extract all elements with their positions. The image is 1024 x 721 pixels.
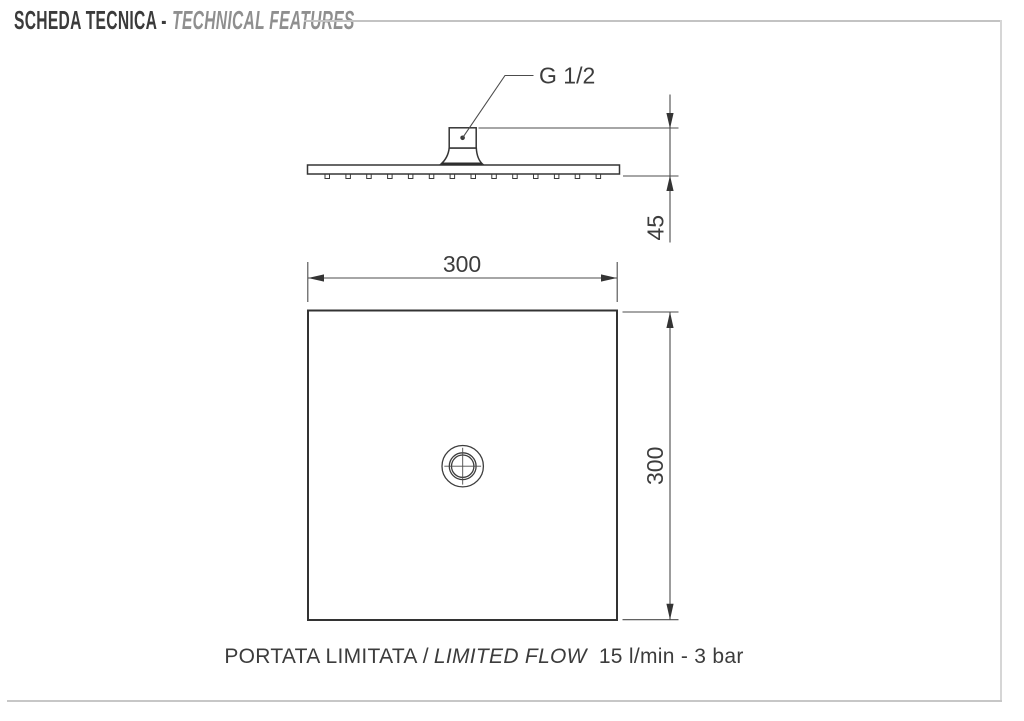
- dim-value-height: 300: [642, 447, 668, 485]
- flow-caption: PORTATA LIMITATA /LIMITED FLOW15 l/min -…: [0, 645, 968, 669]
- arrowhead-down-icon: [666, 604, 673, 620]
- connector-bell: [441, 148, 483, 164]
- tech-sheet-page: SCHEDA TECNICA -TECHNICAL FEATURES: [0, 0, 1024, 721]
- arrowhead-right-icon: [601, 274, 617, 281]
- arrowhead-up-icon: [666, 312, 673, 328]
- head-plate-profile: [308, 165, 620, 174]
- dim-value-45: 45: [643, 215, 669, 241]
- caption-english: LIMITED FLOW: [434, 645, 587, 668]
- technical-drawing: G 1/2 45: [0, 0, 1024, 721]
- dim-width: 300: [308, 251, 617, 302]
- caption-specs: 15 l/min - 3 bar: [599, 645, 744, 668]
- arrowhead-left-icon: [308, 274, 324, 281]
- connection-label: G 1/2: [539, 63, 595, 89]
- center-inlet-hub: [442, 446, 483, 487]
- dim-value-width: 300: [443, 251, 481, 277]
- side-view: [308, 128, 620, 179]
- arrowhead-down-icon: [666, 113, 673, 129]
- front-view: [308, 311, 617, 621]
- dim-height: 300: [623, 312, 679, 620]
- arrowhead-up-icon: [666, 175, 673, 191]
- caption-italian: PORTATA LIMITATA /: [224, 645, 429, 668]
